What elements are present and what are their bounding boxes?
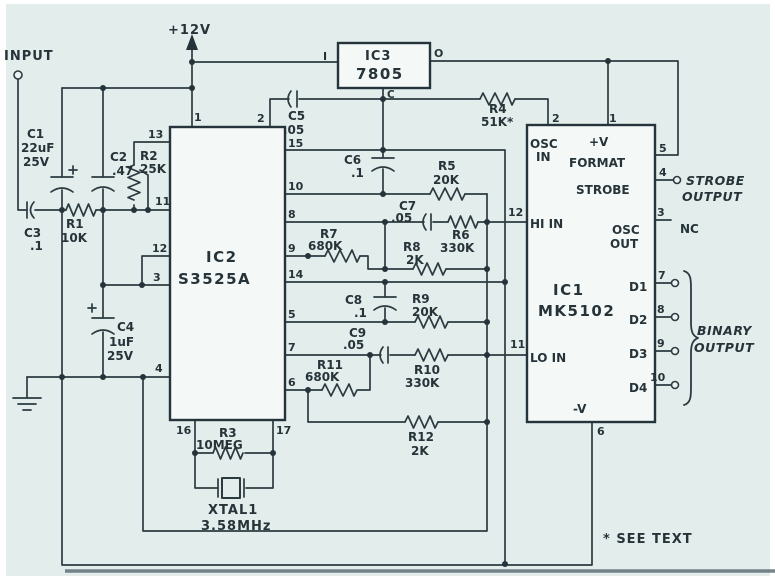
strobe-output-terminal xyxy=(674,177,681,184)
d4-terminal xyxy=(672,382,679,389)
ic2-pin-9: 9 xyxy=(288,242,296,255)
c3-value: .1 xyxy=(30,239,43,253)
ic1-pin-10: 10 xyxy=(650,371,666,384)
ic1-pin-2: 2 xyxy=(552,112,560,125)
ic1-d4: D4 xyxy=(629,381,647,395)
r2-ref: R2 xyxy=(140,149,158,163)
r5-ref: R5 xyxy=(438,159,456,173)
strobe-output-l2: OUTPUT xyxy=(682,189,743,204)
r6-ref: R6 xyxy=(452,228,470,242)
ic2-pin-14: 14 xyxy=(288,268,304,281)
r5-value: 20K xyxy=(433,173,460,187)
ic1-osc-in-l1: OSC xyxy=(530,137,558,151)
r12-value: 2K xyxy=(411,444,429,458)
ic2-pin-2: 2 xyxy=(257,112,265,125)
strobe-output-l1: STROBE xyxy=(686,173,745,188)
xtal-ref: XTAL1 xyxy=(208,503,258,518)
r3-value: 10MEG xyxy=(196,438,243,452)
ic1-part: MK5102 xyxy=(538,302,615,320)
ic1-ref: IC1 xyxy=(553,281,585,299)
r10-ref: R10 xyxy=(414,363,440,377)
d2-terminal xyxy=(672,314,679,321)
ic1-osc-out-l1: OSC xyxy=(612,223,640,237)
r4-ref: R4 xyxy=(489,102,507,116)
c1-value: 22uF xyxy=(21,141,54,155)
ic2-pin-13: 13 xyxy=(148,128,163,141)
input-terminal xyxy=(14,71,22,79)
r11-value: 680K xyxy=(305,370,340,384)
ic1-d3: D3 xyxy=(629,347,647,361)
c9-value: .05 xyxy=(343,338,364,352)
c2-ref: C2 xyxy=(110,150,127,164)
ic2-pin-8: 8 xyxy=(288,208,296,221)
c5-ref: C5 xyxy=(288,109,305,123)
ic1-osc-out-l2: OUT xyxy=(610,237,639,251)
ic1-pin-7: 7 xyxy=(658,269,666,282)
r1-ref: R1 xyxy=(66,217,84,231)
ic2-pin-15: 15 xyxy=(288,137,303,150)
input-label: INPUT xyxy=(4,49,54,64)
c4-value: 1uF xyxy=(109,335,134,349)
c4-ref: C4 xyxy=(117,320,134,334)
ic1-pin-8: 8 xyxy=(657,303,665,316)
c1-ref: C1 xyxy=(27,127,44,141)
ic3-ref: IC3 xyxy=(365,49,391,64)
ic1-pin-4: 4 xyxy=(659,166,667,179)
ic3-in-label: I xyxy=(323,50,327,63)
ic2-pin-12: 12 xyxy=(152,242,167,255)
ic2-pin-7: 7 xyxy=(288,341,296,354)
ic1-osc-in-l2: IN xyxy=(536,150,551,164)
nc-label: NC xyxy=(680,222,699,236)
ic1-strobe: STROBE xyxy=(576,183,630,197)
ic2-pin-1: 1 xyxy=(194,111,202,124)
c2-value: .47 xyxy=(112,164,133,178)
c1-voltage: 25V xyxy=(23,155,50,169)
ic2-pin-11: 11 xyxy=(155,195,170,208)
schematic-page: INPUT +12V * SEE TEXT IC3 7805 I O C IC2… xyxy=(0,0,775,583)
ic2-pin-17: 17 xyxy=(276,424,291,437)
r6-value: 330K xyxy=(440,241,475,255)
ic2-pin-3: 3 xyxy=(153,271,161,284)
c6-value: .1 xyxy=(351,166,364,180)
ic3-out-label: O xyxy=(434,47,443,60)
ic1-pin-3: 3 xyxy=(657,206,665,219)
ic2-part: S3525A xyxy=(178,270,251,288)
r10-value: 330K xyxy=(405,376,440,390)
ic2-ref: IC2 xyxy=(206,248,238,266)
ic1-format: FORMAT xyxy=(569,156,626,170)
c8-value: .1 xyxy=(354,306,367,320)
ic3-com-label: C xyxy=(387,89,395,101)
ic1-d2: D2 xyxy=(629,313,647,327)
ic1-pin-11: 11 xyxy=(510,338,525,351)
ic1-pin-1: 1 xyxy=(609,112,617,125)
r8-value: 2K xyxy=(406,253,424,267)
c8-ref: C8 xyxy=(345,293,362,307)
c3-ref: C3 xyxy=(24,226,41,240)
ic1-pin-12: 12 xyxy=(508,206,523,219)
ic3-part: 7805 xyxy=(356,65,404,83)
power-label: +12V xyxy=(168,23,211,38)
r2-value: 25K xyxy=(140,162,167,176)
ic1-hi-in: HI IN xyxy=(530,217,563,231)
ic1-pin-6: 6 xyxy=(597,425,605,438)
binary-output-l1: BINARY xyxy=(697,323,753,338)
ic2-pin-6: 6 xyxy=(288,376,296,389)
c7-value: .05 xyxy=(391,211,412,225)
ic2-pin-4: 4 xyxy=(155,362,163,375)
r9-ref: R9 xyxy=(412,292,430,306)
ic1-lo-in: LO IN xyxy=(530,351,566,365)
ic2-pin-5: 5 xyxy=(288,308,296,321)
ic2-pin-10: 10 xyxy=(288,180,304,193)
c4-voltage: 25V xyxy=(107,349,134,363)
r7-value: 680K xyxy=(308,239,343,253)
ic1-pin-5: 5 xyxy=(659,142,667,155)
r9-value: 20K xyxy=(412,305,439,319)
r12-ref: R12 xyxy=(408,430,434,444)
c6-ref: C6 xyxy=(344,153,361,167)
circuit-schematic: INPUT +12V * SEE TEXT IC3 7805 I O C IC2… xyxy=(0,0,775,583)
r1-value: 10K xyxy=(61,231,88,245)
d1-terminal xyxy=(672,280,679,287)
ic1-plus-v: +V xyxy=(589,135,609,149)
ic1-pin-9: 9 xyxy=(657,337,665,350)
ic1-minus-v: -V xyxy=(573,402,587,416)
xtal-value: 3.58MHz xyxy=(201,519,271,534)
r4-value: 51K* xyxy=(481,115,514,129)
ic1-d1: D1 xyxy=(629,280,647,294)
d3-terminal xyxy=(672,348,679,355)
see-text-note: * SEE TEXT xyxy=(603,532,693,547)
c5-value: .05 xyxy=(283,123,304,137)
ic2-pin-16: 16 xyxy=(176,424,192,437)
binary-output-l2: OUTPUT xyxy=(694,340,755,355)
r8-ref: R8 xyxy=(403,240,421,254)
